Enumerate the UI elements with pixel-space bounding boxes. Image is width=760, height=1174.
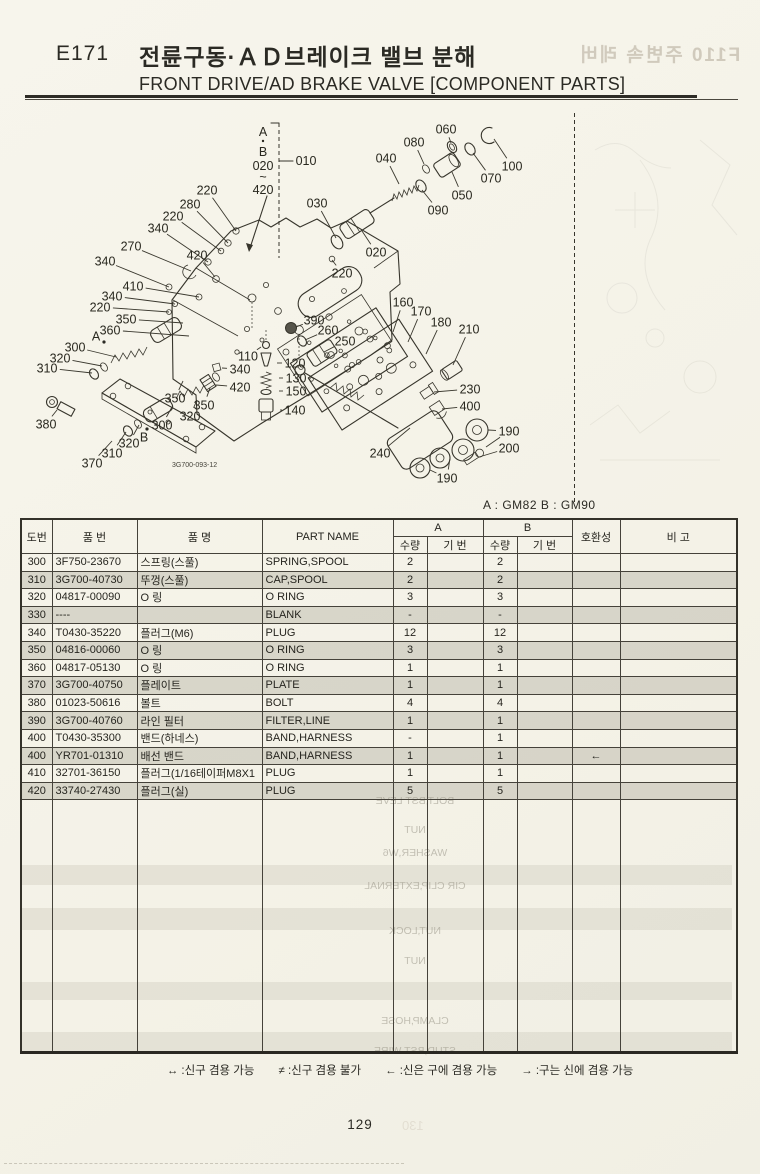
part-callout: 060 (436, 122, 457, 136)
leader-line (408, 319, 418, 342)
table-row: 3003F750-23670스프링(스풀)SPRING,SPOOL22 (21, 554, 737, 572)
part-callout: 410 (123, 279, 144, 293)
marker-dot (102, 340, 105, 343)
leader-line (452, 172, 458, 187)
leader-line (324, 346, 335, 352)
legend-item: ↔ :신구 겸용 가능 (167, 1062, 255, 1078)
part-callout: 220 (197, 183, 218, 197)
legend-item: ≠ :신구 겸용 불가 (278, 1062, 361, 1078)
part-callout: 220 (332, 266, 353, 280)
leader-line (52, 410, 57, 416)
table-row: 3703G700-40750플레이트PLATE11 (21, 677, 737, 695)
part-callout: 190 (437, 471, 458, 485)
bracket-label-b: B (259, 145, 267, 159)
part-callout: 120 (285, 356, 306, 370)
page-title-english: FRONT DRIVE/AD BRAKE VALVE [COMPONENT PA… (139, 74, 625, 95)
ref-bracket: A B 020 ~ 420 010 (246, 123, 316, 258)
leader-line (197, 211, 228, 243)
part-callout: 350 (165, 391, 186, 405)
leader-line (216, 385, 227, 386)
part-callout: 230 (460, 382, 481, 396)
part-callout: 170 (411, 304, 432, 318)
bracket-range-tilde: ~ (259, 170, 266, 184)
bleedthrough-diagram-ghost (590, 140, 737, 460)
table-empty-area (21, 800, 737, 1053)
plug-340-small (212, 363, 221, 372)
part-callout: 050 (452, 188, 473, 202)
part-callout: A (92, 329, 101, 343)
col-header-group-a: A (393, 519, 483, 537)
col-header-compat: 호환성 (572, 519, 620, 554)
part-callout: 420 (187, 248, 208, 262)
part-callout: 110 (238, 349, 258, 363)
leader-line (430, 470, 436, 473)
part-callout: 270 (121, 239, 142, 253)
check-valve-parts (259, 330, 273, 420)
bleedthrough-page-number: 130 (402, 1118, 424, 1133)
col-header-name-kr: 품 명 (137, 519, 262, 554)
leader-line (479, 452, 497, 458)
col-header-no: 도번 (21, 519, 52, 554)
bracket-label-a: A (259, 125, 268, 139)
title-rule-thick (25, 95, 697, 98)
table-row: 330----BLANK-- (21, 606, 737, 624)
compat-legend: ↔ :신구 겸용 가능≠ :신구 겸용 불가← :신은 구에 겸용 가능→ :구… (110, 1062, 690, 1078)
part-callout: B (140, 430, 148, 444)
table-row: 35004816-00060O 링O RING33 (21, 641, 737, 659)
part-callout: 090 (428, 203, 449, 217)
leader-line (422, 190, 432, 203)
part-callout: 310 (37, 361, 58, 375)
part-callout: 070 (481, 171, 502, 185)
leader-line (393, 310, 400, 332)
part-callout: 140 (285, 403, 306, 417)
page-bottom-edge (4, 1163, 404, 1164)
leader-line (305, 335, 317, 340)
solenoid-assembly-240 (295, 360, 488, 478)
page-title-korean: 전륜구동·ＡＤ브레이크 밸브 분해 (139, 38, 476, 72)
part-callout: 210 (459, 322, 480, 336)
table-row: 36004817-05130O 링O RING11 (21, 659, 737, 677)
leader-line (321, 211, 336, 238)
col-header-part-no: 품 번 (52, 519, 137, 554)
catalog-page: { "page": { "code": "E171", "title_kr": … (0, 0, 760, 1174)
leader-line (494, 139, 507, 158)
part-callout: 020 (366, 245, 387, 259)
leader-line (123, 331, 189, 336)
part-callout: 340 (148, 221, 169, 235)
part-callout: 180 (431, 315, 452, 329)
part-callout: 340 (95, 254, 116, 268)
variant-note: A : GM82 B : GM90 (483, 498, 596, 512)
plug-210 (439, 360, 463, 382)
part-callout: 350 (194, 398, 215, 412)
leader-line (390, 166, 399, 184)
col-header-serial-a: 기 번 (427, 537, 483, 554)
exploded-parts-diagram: A B 020 ~ 420 010 (0, 100, 760, 510)
part-callout: 340 (230, 362, 251, 376)
leader-line (473, 153, 486, 170)
page-code: E171 (56, 42, 109, 66)
leader-line (60, 369, 92, 373)
leader-line (426, 330, 437, 354)
table-row: 3903G700-40760라인 필터FILTER,LINE11 (21, 712, 737, 730)
solenoid-coil-190 (410, 419, 488, 478)
leader-line (139, 320, 183, 323)
leader-line (213, 198, 237, 231)
parts-table-body: 3003F750-23670스프링(스풀)SPRING,SPOOL223103G… (21, 554, 737, 1053)
table-row: 400T0430-35300밴드(하네스)BAND,HARNESS-1 (21, 729, 737, 747)
table-row: 42033740-27430플러그(실)PLUG55 (21, 782, 737, 800)
leader-line (453, 337, 465, 365)
part-callout: 360 (100, 323, 121, 337)
part-callout: 150 (286, 384, 307, 398)
part-callout: 320 (119, 436, 140, 450)
part-callout: 370 (82, 456, 103, 470)
legend-item: → :구는 신에 겸용 가능 (521, 1062, 633, 1078)
part-callout: 250 (335, 334, 356, 348)
table-row: 3103G700-40730뚜껑(스풀)CAP,SPOOL22 (21, 571, 737, 589)
part-callout: 100 (502, 159, 523, 173)
leader-line (142, 251, 191, 271)
bracket-ref-010: 010 (296, 154, 317, 168)
part-callout: 400 (460, 399, 481, 413)
leader-line (87, 350, 116, 357)
part-callout: 040 (376, 151, 397, 165)
part-callout: 220 (90, 300, 111, 314)
table-row: 41032701-36150플러그(1/16테이퍼M8X1PLUG11 (21, 765, 737, 783)
part-callout: 380 (36, 417, 57, 431)
table-row: 38001023-50616볼트BOLT44 (21, 694, 737, 712)
leader-line (418, 150, 424, 164)
leader-line (73, 360, 103, 366)
table-row: 340T0430-35220플러그(M6)PLUG1212 (21, 624, 737, 642)
bleedthrough-header-text: F110 주변속 레버 (578, 40, 740, 67)
line-filter-390 (286, 323, 297, 334)
col-header-group-b: B (483, 519, 572, 537)
col-header-note: 비 고 (620, 519, 737, 554)
leader-line (146, 288, 199, 297)
legend-item: ← :신은 구에 겸용 가능 (385, 1062, 497, 1078)
part-callout: 080 (404, 135, 425, 149)
table-row: 400YR701-01310배선 밴드BAND,HARNESS11← (21, 747, 737, 765)
part-callout: 190 (499, 424, 520, 438)
col-header-serial-b: 기 번 (517, 537, 572, 554)
col-header-qty-a: 수량 (393, 537, 427, 554)
table-row: 32004817-00090O 링O RING33 (21, 589, 737, 607)
drawing-number: 3G700-093-12 (172, 462, 217, 469)
part-callout: 130 (286, 371, 307, 385)
bolt-380 (47, 397, 75, 417)
part-callout: 200 (499, 441, 520, 455)
leader-line (125, 298, 175, 304)
col-header-part-name: PART NAME (262, 519, 393, 554)
part-callout: 420 (230, 380, 251, 394)
bracket-range-to: 420 (253, 183, 274, 197)
part-callout: 240 (370, 446, 391, 460)
part-callout: 030 (307, 196, 328, 210)
leader-line (182, 222, 221, 251)
part-callout: 300 (152, 418, 173, 432)
parts-table: 도번 품 번 품 명 PART NAME A B 호환성 비 고 수량 기 번 … (20, 518, 738, 1054)
col-header-qty-b: 수량 (483, 537, 517, 554)
